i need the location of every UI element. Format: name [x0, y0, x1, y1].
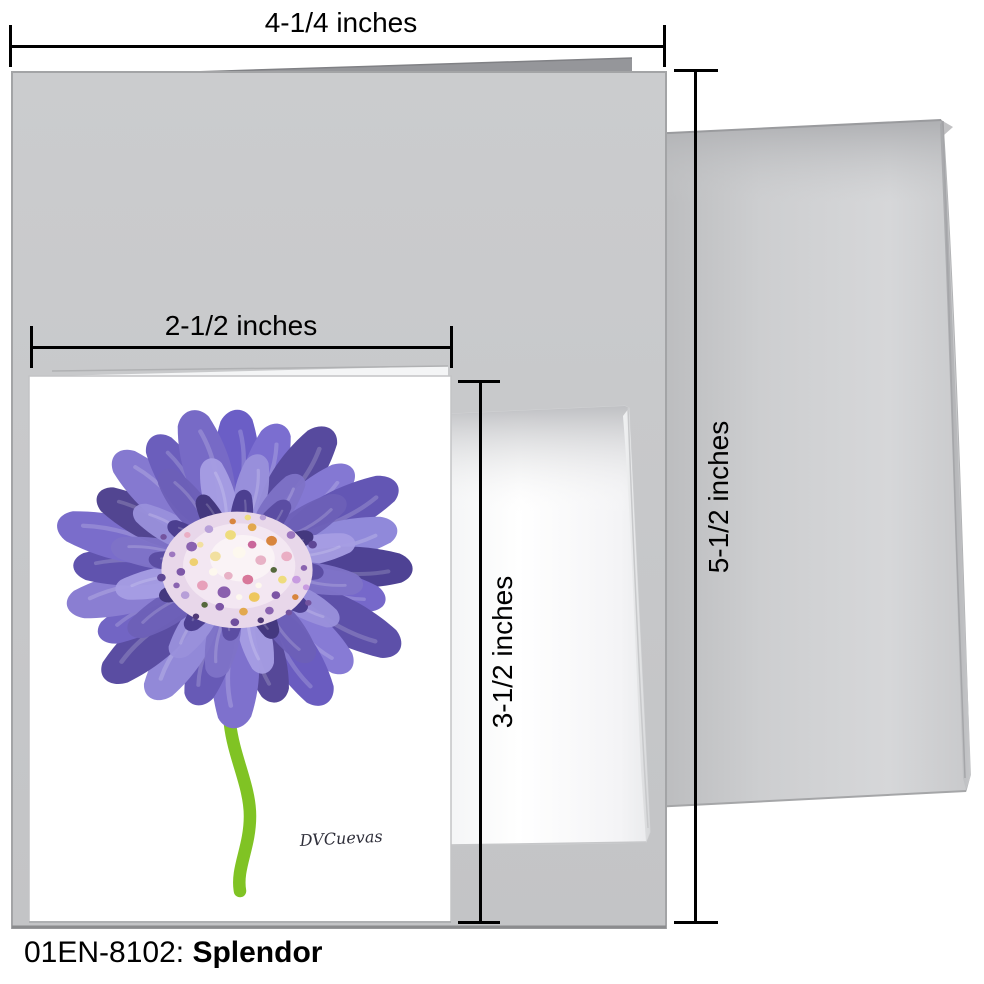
dim-line	[479, 380, 482, 924]
product-code: 01EN-8102:	[24, 936, 184, 969]
dim-tick	[450, 326, 453, 368]
dim-large-card-height-label: 5-1/2 inches	[703, 407, 733, 587]
dim-small-card-height-label: 3-1/2 inches	[487, 562, 517, 742]
dim-tick	[674, 921, 718, 924]
dim-line	[694, 69, 697, 924]
dim-small-card-width-label: 2-1/2 inches	[78, 310, 404, 342]
product-title: Splendor	[192, 936, 322, 969]
dim-large-card-width-label: 4-1/4 inches	[178, 7, 504, 39]
dim-tick	[663, 25, 666, 67]
dim-line	[30, 346, 453, 349]
small-card: DVCuevas	[29, 366, 451, 923]
dim-tick	[458, 921, 500, 924]
dim-line	[9, 45, 666, 48]
product-caption: 01EN-8102: Splendor	[24, 936, 322, 970]
product-mockup-scene: DVCuevas	[0, 0, 984, 984]
